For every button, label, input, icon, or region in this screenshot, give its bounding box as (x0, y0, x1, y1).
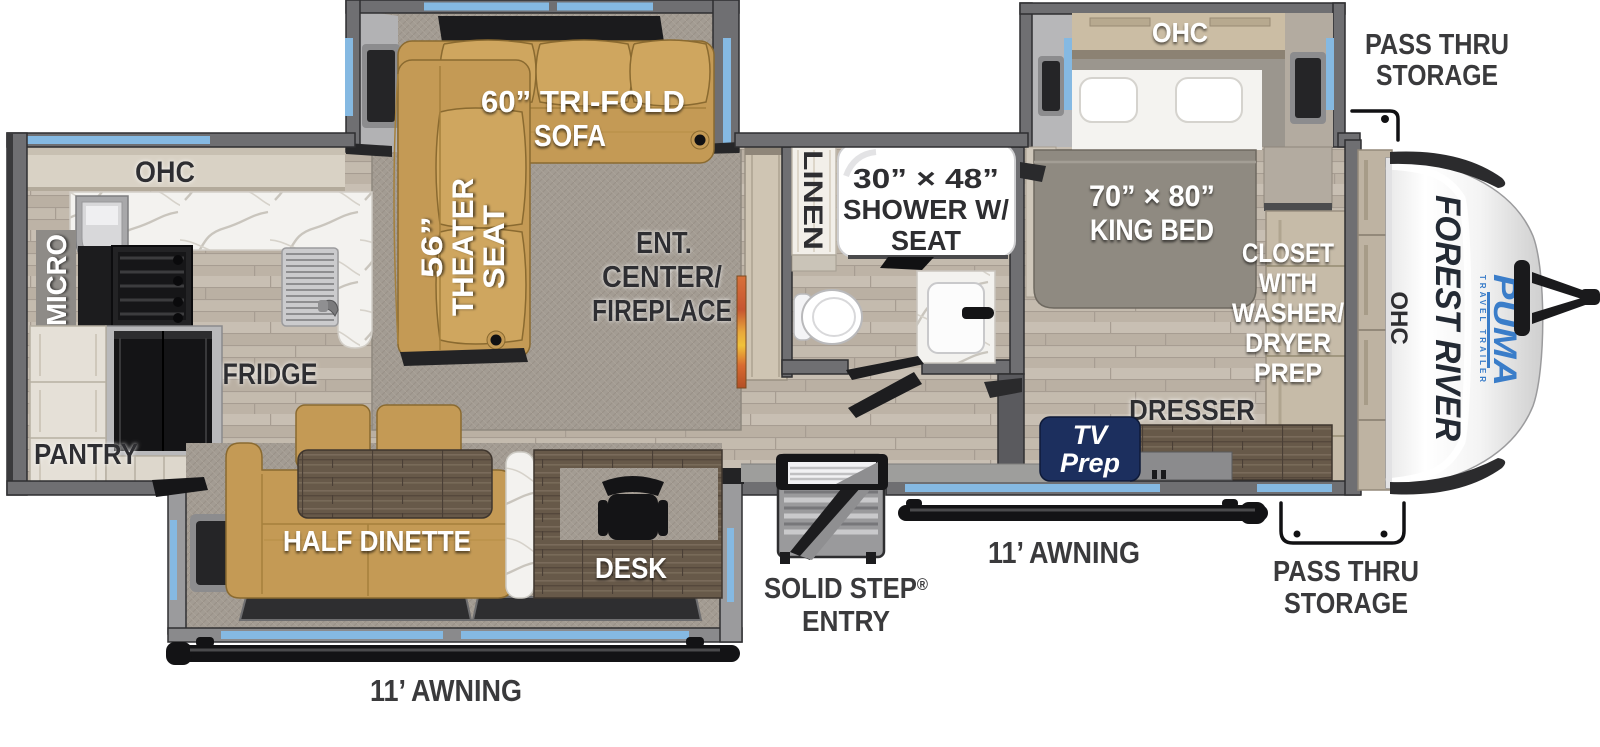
svg-text:LINEN: LINEN (798, 150, 828, 250)
svg-text:Prep: Prep (1060, 448, 1120, 478)
svg-text:DESK: DESK (595, 553, 667, 585)
svg-text:PASS THRU: PASS THRU (1365, 29, 1509, 61)
svg-text:DRESSER: DRESSER (1129, 395, 1255, 427)
svg-text:FRIDGE: FRIDGE (223, 358, 318, 391)
svg-text:OHC: OHC (1385, 291, 1412, 344)
svg-text:HALF DINETTE: HALF DINETTE (283, 526, 471, 558)
svg-text:ENT.: ENT. (636, 225, 692, 260)
svg-text:ENTRY: ENTRY (802, 606, 890, 638)
svg-text:CLOSET: CLOSET (1242, 238, 1334, 268)
svg-text:KING BED: KING BED (1090, 214, 1214, 247)
svg-text:56”: 56” (416, 216, 449, 278)
svg-text:PANTRY: PANTRY (34, 439, 138, 471)
svg-text:MICRO: MICRO (41, 234, 72, 326)
svg-text:FOREST RIVER: FOREST RIVER (1428, 195, 1467, 442)
svg-text:TV: TV (1073, 420, 1109, 450)
svg-text:SOFA: SOFA (534, 118, 606, 153)
svg-text:TRAVEL TRAILER: TRAVEL TRAILER (1478, 275, 1487, 385)
svg-text:SEAT: SEAT (478, 205, 511, 289)
svg-text:STORAGE: STORAGE (1376, 60, 1498, 92)
svg-text:SEAT: SEAT (891, 225, 961, 256)
svg-text:THEATER: THEATER (447, 178, 480, 316)
svg-text:70” × 80”: 70” × 80” (1089, 180, 1215, 213)
svg-text:PREP: PREP (1254, 358, 1322, 388)
svg-text:11’ AWNING: 11’ AWNING (988, 535, 1140, 570)
svg-text:FIREPLACE: FIREPLACE (592, 293, 732, 328)
svg-text:WASHER/: WASHER/ (1232, 298, 1344, 328)
svg-text:11’ AWNING: 11’ AWNING (370, 673, 522, 708)
svg-text:PASS THRU: PASS THRU (1273, 556, 1419, 588)
svg-text:SOLID STEP®: SOLID STEP® (764, 573, 928, 605)
svg-text:30” × 48”: 30” × 48” (853, 163, 999, 194)
svg-text:WITH: WITH (1259, 268, 1317, 298)
svg-text:60” TRI-FOLD: 60” TRI-FOLD (481, 84, 685, 119)
svg-text:OHC: OHC (135, 156, 195, 189)
svg-text:OHC: OHC (1152, 17, 1208, 48)
svg-text:CENTER/: CENTER/ (602, 259, 722, 294)
svg-text:DRYER: DRYER (1245, 328, 1331, 358)
svg-text:STORAGE: STORAGE (1284, 588, 1408, 620)
svg-text:SHOWER W/: SHOWER W/ (843, 194, 1009, 225)
